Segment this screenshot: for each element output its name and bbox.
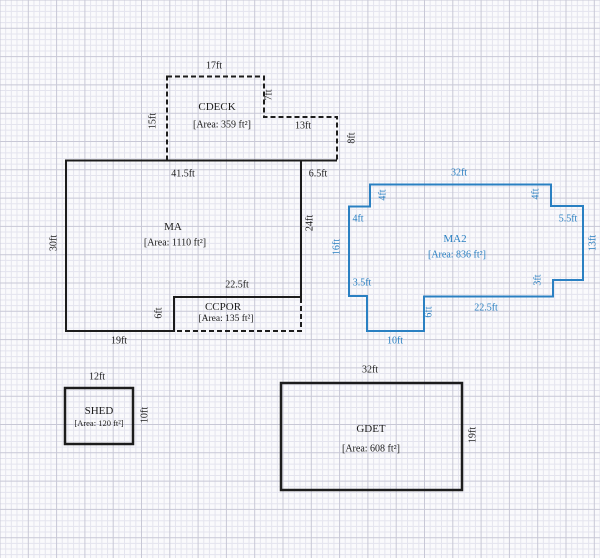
ma-dim-label-3: 6.5ft (309, 169, 328, 180)
ccpor-dim-label-3: 6ft (154, 307, 165, 318)
sketch-canvas: CDECK[Area: 359 ft²]17ft15ft7ft13ft8ftCC… (0, 0, 600, 558)
ma-area-label-1: [Area: 1110 ft²] (144, 238, 206, 249)
shed-dim-label-2: 12ft (89, 372, 105, 383)
ma2-dim-label-9: 22.5ft (474, 303, 498, 314)
ma-dim-label-4: 30ft (49, 235, 60, 251)
ma-dim-label-2: 41.5ft (171, 169, 195, 180)
cdeck-dim-label-3: 15ft (148, 113, 159, 129)
ma2-dim-label-12: 5.5ft (559, 214, 578, 225)
ma2-dim-label-2: 32ft (451, 168, 467, 179)
ma2-area-label-1: [Area: 836 ft²] (428, 250, 486, 261)
ma2-dim-label-10: 3ft (533, 274, 544, 285)
floor-plan-sketch: CDECK[Area: 359 ft²]17ft15ft7ft13ft8ftCC… (0, 0, 600, 558)
ma-dim-label-5: 24ft (305, 215, 316, 231)
ccpor-area-label-1: [Area: 135 ft²] (198, 313, 253, 324)
ma2-dim-label-13: 4ft (531, 188, 542, 199)
ma2-dim-label-5: 16ft (332, 239, 343, 255)
ma2-dim-label-7: 10ft (387, 336, 403, 347)
gdet-dim-label-2: 32ft (362, 365, 378, 376)
cdeck-dim-label-6: 8ft (347, 132, 358, 143)
ma2-dim-label-8: 6ft (424, 306, 435, 317)
ma2-name-label-0: MA2 (443, 233, 466, 245)
cdeck-name-label-0: CDECK (198, 101, 235, 113)
ma2-dim-label-4: 4ft (352, 214, 363, 225)
cdeck-area-label-1: [Area: 359 ft²] (193, 120, 251, 131)
shed-area-label-1: [Area: 120 ft²] (74, 418, 123, 428)
shed-name-label-0: SHED (85, 405, 114, 417)
gdet-dim-label-3: 19ft (468, 427, 479, 443)
ma2-dim-label-3: 4ft (378, 189, 389, 200)
gdet-name-label-0: GDET (356, 423, 386, 435)
cdeck-dim-label-2: 17ft (206, 61, 222, 72)
ccpor-name-label-0: CCPOR (205, 301, 242, 313)
ma2-dim-label-11: 13ft (588, 235, 599, 251)
ma-dim-label-6: 19ft (111, 336, 127, 347)
ma2-dim-label-6: 3.5ft (353, 278, 372, 289)
cdeck-dim-label-4: 7ft (264, 89, 275, 100)
cdeck-dim-label-5: 13ft (295, 121, 311, 132)
gdet-area-label-1: [Area: 608 ft²] (342, 444, 400, 455)
shed-dim-label-3: 10ft (140, 407, 151, 423)
ma-name-label-0: MA (164, 221, 182, 233)
ccpor-dim-label-2: 22.5ft (225, 280, 249, 291)
